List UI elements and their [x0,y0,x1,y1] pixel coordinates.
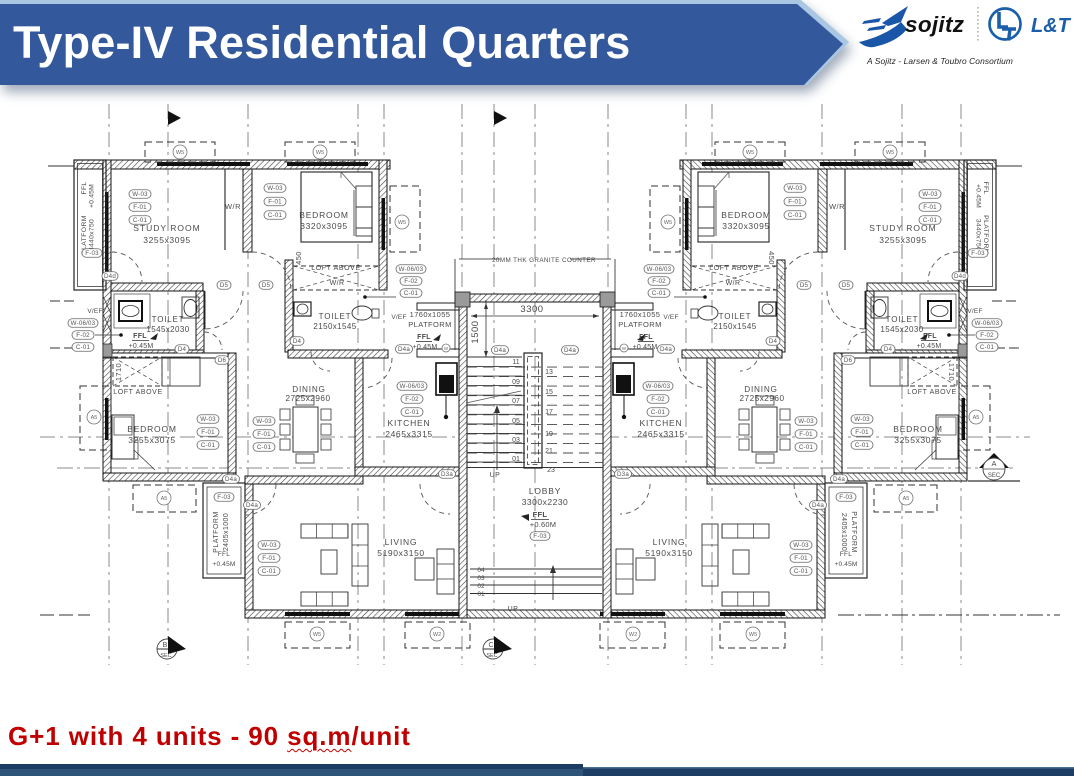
svg-text:F-01: F-01 [268,199,282,206]
svg-text:D3a: D3a [617,471,629,478]
svg-text:W5: W5 [886,150,894,156]
svg-text:2150x1545: 2150x1545 [313,322,356,331]
svg-text:F-01: F-01 [133,204,147,211]
svg-text:+0.45M: +0.45M [834,561,857,568]
svg-text:TOILET: TOILET [319,312,352,321]
svg-text:W-06/03: W-06/03 [646,383,671,390]
svg-text:D4: D4 [769,338,778,345]
svg-text:D4a: D4a [564,347,576,354]
svg-text:W2: W2 [629,632,637,638]
svg-text:V/EF: V/EF [663,314,678,321]
svg-text:F-02: F-02 [404,278,418,285]
svg-text:C-01: C-01 [652,290,667,297]
svg-text:KITCHEN: KITCHEN [640,418,683,428]
svg-text:D5: D5 [220,282,229,289]
svg-text:D4a: D4a [246,502,258,509]
svg-text:1710: 1710 [947,363,956,381]
svg-text:F-02: F-02 [651,396,665,403]
svg-text:TOILET: TOILET [152,315,185,324]
svg-text:+0.45M: +0.45M [89,184,96,208]
svg-text:FFL: FFL [417,334,431,341]
svg-text:FFL: FFL [81,182,88,195]
svg-text:F-01: F-01 [262,555,276,562]
svg-text:20MM THK GRANITE COUNTER: 20MM THK GRANITE COUNTER [492,257,596,264]
svg-text:B: B [163,642,168,649]
svg-text:04: 04 [477,567,485,574]
svg-text:TOILET: TOILET [719,312,752,321]
svg-text:F-03: F-03 [217,494,231,501]
svg-text:W-03: W-03 [793,542,809,549]
svg-text:UP: UP [508,606,519,613]
svg-text:W/R: W/R [726,280,741,287]
svg-text:TOILET: TOILET [886,315,919,324]
svg-text:3440x750: 3440x750 [975,219,982,251]
svg-text:+0.45M: +0.45M [917,343,942,350]
svg-text:A: A [991,459,996,468]
svg-text:C-01: C-01 [201,442,216,449]
svg-text:D4: D4 [293,338,302,345]
svg-text:F-01: F-01 [855,429,869,436]
svg-text:W/R: W/R [225,202,241,211]
svg-text:3300x2230: 3300x2230 [522,497,569,507]
svg-text:19: 19 [545,431,553,438]
svg-text:23: 23 [547,467,555,474]
svg-text:sojitz: sojitz [905,12,965,37]
svg-text:C-01: C-01 [980,344,995,351]
svg-text:+0.60M: +0.60M [530,520,556,529]
svg-text:5190x3150: 5190x3150 [377,548,424,558]
svg-text:W5: W5 [316,150,324,156]
svg-text:13: 13 [545,369,553,376]
svg-text:C-01: C-01 [794,568,809,575]
svg-text:W5: W5 [313,632,321,638]
svg-text:W5: W5 [176,150,184,156]
svg-text:W-03: W-03 [798,418,814,425]
svg-text:+0.45M: +0.45M [975,184,982,208]
svg-text:D4: D4 [884,346,893,353]
svg-text:3320x3095: 3320x3095 [300,221,347,231]
svg-text:D4a: D4a [812,502,824,509]
svg-text:PLATFORM: PLATFORM [618,320,661,329]
svg-text:F-01: F-01 [794,555,808,562]
svg-text:W-06/03: W-06/03 [400,383,425,390]
svg-text:W-03: W-03 [854,416,870,423]
svg-text:1710: 1710 [114,363,123,381]
svg-text:11: 11 [512,359,519,366]
svg-text:D4a: D4a [660,346,672,353]
svg-text:F-03: F-03 [533,533,547,540]
svg-text:2405x1000: 2405x1000 [840,513,847,551]
svg-text:V/EF: V/EF [87,308,102,315]
svg-text:C-01: C-01 [799,444,814,451]
svg-text:2465x3315: 2465x3315 [385,429,432,439]
svg-text:W-06/03: W-06/03 [975,320,1000,327]
svg-text:W-03: W-03 [922,191,938,198]
svg-text:C-01: C-01 [405,409,420,416]
svg-text:1545x2030: 1545x2030 [880,325,923,334]
svg-text:W5: W5 [749,632,757,638]
svg-text:LOFT ABOVE: LOFT ABOVE [113,389,162,396]
svg-text:D4d: D4d [954,273,966,280]
svg-text:D5: D5 [842,282,851,289]
svg-text:A5: A5 [161,496,168,502]
svg-text:D4d: D4d [104,273,116,280]
svg-text:C-01: C-01 [257,444,272,451]
svg-text:03: 03 [512,437,520,444]
svg-text:W/R: W/R [829,202,845,211]
svg-text:01: 01 [477,591,485,598]
svg-text:A Sojitz - Larsen & Toubro Con: A Sojitz - Larsen & Toubro Consortium [866,56,1013,66]
svg-text:3320x3095: 3320x3095 [722,221,769,231]
svg-text:03: 03 [477,575,485,582]
svg-text:W-06/03: W-06/03 [71,320,96,327]
svg-text:3440x750: 3440x750 [89,219,96,251]
svg-text:+0.45M: +0.45M [413,344,438,351]
svg-text:2405x1000: 2405x1000 [223,513,230,551]
svg-text:1760x1055: 1760x1055 [620,310,661,319]
svg-text:D5: D5 [800,282,809,289]
svg-text:C-01: C-01 [133,217,148,224]
svg-text:F-02: F-02 [76,332,90,339]
svg-text:W5: W5 [746,150,754,156]
svg-text:W: W [622,346,626,351]
svg-text:D6: D6 [844,357,853,364]
svg-text:FFL: FFL [840,551,853,558]
svg-text:C-01: C-01 [404,290,419,297]
svg-text:1545x2030: 1545x2030 [146,325,189,334]
svg-text:F-02: F-02 [652,278,666,285]
svg-text:D4: D4 [178,346,187,353]
svg-text:02: 02 [477,583,485,590]
svg-text:07: 07 [512,398,520,405]
svg-text:F-02: F-02 [980,332,994,339]
svg-text:W-03: W-03 [132,191,148,198]
svg-text:05: 05 [512,418,520,425]
svg-text:3255x3095: 3255x3095 [879,235,926,245]
svg-text:C-01: C-01 [855,442,870,449]
svg-text:PLATFORM: PLATFORM [213,511,220,553]
svg-text:W2: W2 [433,632,441,638]
svg-text:A5: A5 [91,415,98,421]
svg-text:450: 450 [294,251,303,265]
svg-text:W-03: W-03 [200,416,216,423]
svg-text:17: 17 [545,409,553,416]
svg-text:F-01: F-01 [788,199,802,206]
svg-text:D6: D6 [218,357,227,364]
svg-text:W5: W5 [398,220,406,226]
svg-text:C-01: C-01 [76,344,91,351]
svg-text:+0.45M: +0.45M [129,343,154,350]
svg-text:BEDROOM: BEDROOM [893,424,943,434]
svg-text:15: 15 [545,389,553,396]
svg-text:A5: A5 [973,415,980,421]
svg-text:BEDROOM: BEDROOM [299,210,349,220]
svg-text:V/EF: V/EF [967,308,982,315]
svg-text:PLATFORM: PLATFORM [408,320,451,329]
svg-text:LOFT ABOVE: LOFT ABOVE [709,265,758,272]
svg-text:C-01: C-01 [788,212,803,219]
svg-text:W-03: W-03 [261,542,277,549]
svg-text:F-03: F-03 [85,250,99,257]
svg-text:W/R: W/R [330,280,345,287]
svg-text:01: 01 [512,456,520,463]
svg-text:DINING: DINING [292,385,325,394]
svg-text:W-03: W-03 [267,185,283,192]
svg-text:DINING: DINING [744,385,777,394]
svg-text:F-01: F-01 [923,204,937,211]
svg-text:+0.45M: +0.45M [212,561,235,568]
svg-text:D4a: D4a [225,476,237,483]
svg-text:F-03: F-03 [839,494,853,501]
svg-text:LOBBY: LOBBY [529,486,561,496]
svg-text:BEDROOM: BEDROOM [127,424,177,434]
svg-text:3255x3075: 3255x3075 [128,435,175,445]
svg-text:W-03: W-03 [256,418,272,425]
svg-text:F-01: F-01 [799,431,813,438]
svg-text:2150x1545: 2150x1545 [713,322,756,331]
svg-text:L&T: L&T [1031,15,1072,37]
svg-text:2465x3315: 2465x3315 [637,429,684,439]
svg-text:F-01: F-01 [257,431,271,438]
svg-text:SEC: SEC [486,653,497,659]
svg-text:F-01: F-01 [201,429,215,436]
svg-text:FFL: FFL [982,182,989,195]
svg-text:3300: 3300 [520,304,543,315]
svg-text:2725x2960: 2725x2960 [285,394,330,403]
svg-text:LOFT ABOVE: LOFT ABOVE [907,389,956,396]
svg-text:450: 450 [767,251,776,265]
svg-text:C-01: C-01 [651,409,666,416]
svg-text:1760x1055: 1760x1055 [410,310,451,319]
svg-text:C-01: C-01 [262,568,277,575]
svg-text:1500: 1500 [470,320,481,343]
svg-text:W5: W5 [664,220,672,226]
svg-text:PLATFORM: PLATFORM [850,511,857,553]
svg-text:UP: UP [490,472,501,479]
svg-text:F-02: F-02 [405,396,419,403]
svg-text:5190x3150: 5190x3150 [645,548,692,558]
svg-text:SEC: SEC [160,653,171,659]
svg-text:2725x2960: 2725x2960 [739,394,784,403]
svg-text:D3a: D3a [441,471,453,478]
svg-text:V/EF: V/EF [391,314,406,321]
svg-text:BEDROOM: BEDROOM [721,210,771,220]
svg-text:KITCHEN: KITCHEN [388,418,431,428]
svg-text:FFL: FFL [133,333,147,340]
svg-text:3255x3095: 3255x3095 [143,235,190,245]
svg-text:SEC: SEC [988,473,1001,479]
svg-text:F-03: F-03 [971,250,985,257]
svg-text:+0.45M: +0.45M [633,344,658,351]
svg-text:LIVING: LIVING [653,537,686,547]
svg-text:W-06/03: W-06/03 [647,266,672,273]
svg-text:D4a: D4a [398,346,410,353]
svg-text:21: 21 [545,448,553,455]
svg-text:FFL: FFL [218,551,231,558]
svg-text:W-03: W-03 [787,185,803,192]
svg-text:FFL: FFL [533,510,548,519]
svg-text:3255x3075: 3255x3075 [894,435,941,445]
svg-text:09: 09 [512,379,520,386]
svg-text:W: W [444,346,448,351]
svg-text:C-01: C-01 [923,217,938,224]
svg-text:A5: A5 [903,496,910,502]
svg-text:D4a: D4a [494,347,506,354]
svg-text:D5: D5 [262,282,271,289]
svg-text:LOFT ABOVE: LOFT ABOVE [311,265,360,272]
svg-text:C-01: C-01 [268,212,283,219]
svg-text:D4a: D4a [833,476,845,483]
svg-text:LIVING: LIVING [385,537,418,547]
svg-text:C: C [488,642,493,649]
svg-text:W-06/03: W-06/03 [399,266,424,273]
